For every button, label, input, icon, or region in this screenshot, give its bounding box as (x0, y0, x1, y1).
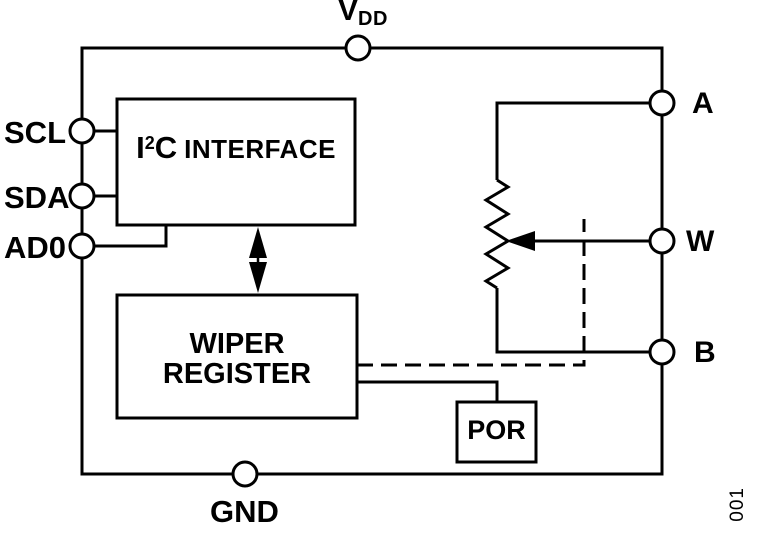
i2c-word: INTERFACE (184, 134, 336, 164)
vdd-letter: V (338, 0, 358, 27)
arrow-head-down (249, 262, 267, 293)
gnd-pin-circle (233, 462, 257, 486)
w-pin-circle (650, 229, 674, 253)
diagram-canvas (0, 0, 760, 534)
terminal-a-wire (497, 103, 662, 180)
sda-pin-circle (70, 184, 94, 208)
resistor-element (486, 180, 508, 288)
por-label: POR (457, 417, 536, 444)
por-wire (357, 382, 497, 402)
ad0-pin-label: AD0 (4, 232, 66, 263)
vdd-subscript: DD (358, 8, 388, 30)
ad0-pin-circle (70, 234, 94, 258)
i2c-interface-label: I2CINTERFACE (117, 132, 355, 163)
a-pin-label: A (692, 89, 714, 119)
i2c-base: I (136, 130, 145, 165)
device-boundary (82, 48, 662, 474)
wiper-register-line1: WIPER (117, 329, 357, 359)
b-pin-label: B (694, 338, 716, 368)
scl-pin-circle (70, 119, 94, 143)
wiper-arrowhead-icon (506, 231, 535, 251)
wiper-register-label: WIPER REGISTER (117, 329, 357, 389)
wiper-register-line2: REGISTER (117, 359, 357, 389)
vdd-pin-circle (346, 36, 370, 60)
functional-block-diagram: VDD SCL SDA AD0 A W B GND I2CINTERFACE W… (0, 0, 760, 534)
i2c-superscript: 2 (145, 133, 155, 153)
figure-number: 001 (728, 487, 747, 522)
a-pin-circle (650, 91, 674, 115)
arrow-head-up (249, 227, 267, 258)
bidirectional-arrow-icon (249, 227, 267, 293)
vdd-pin-label: VDD (338, 0, 388, 29)
b-pin-circle (650, 340, 674, 364)
w-pin-label: W (686, 227, 714, 257)
scl-pin-label: SCL (4, 117, 66, 148)
terminal-b-wire (497, 288, 662, 352)
sda-pin-label: SDA (4, 182, 69, 213)
gnd-pin-label: GND (210, 496, 279, 527)
i2c-base2: C (155, 130, 177, 165)
